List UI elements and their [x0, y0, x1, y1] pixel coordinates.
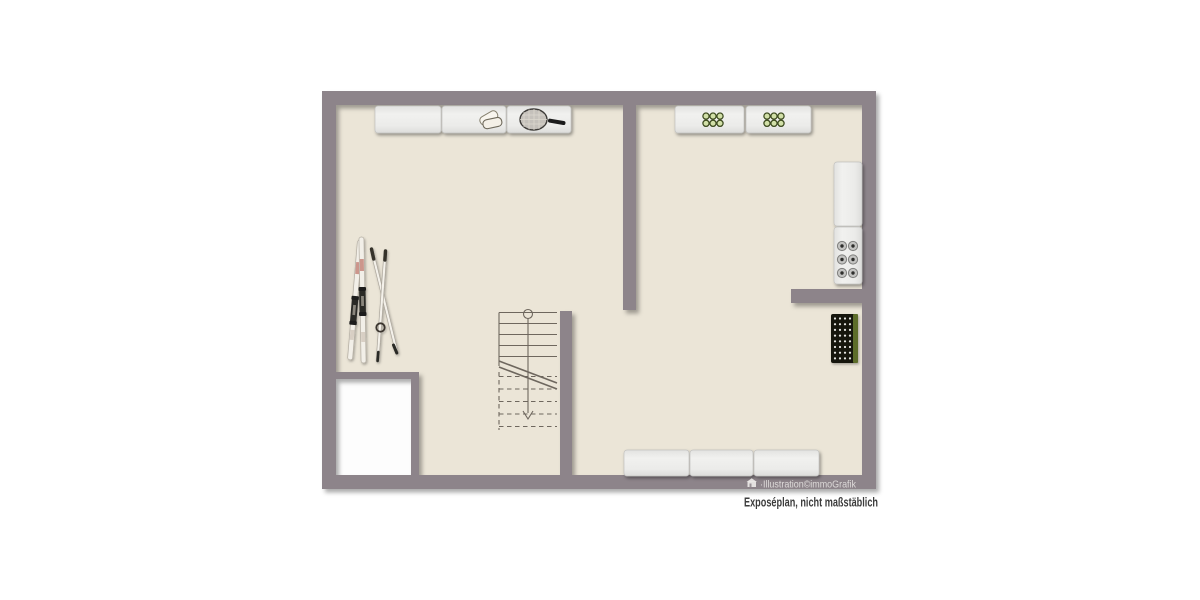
svg-text:Exposéplan, nicht maßstäblich: Exposéplan, nicht maßstäblich [744, 496, 878, 510]
svg-text:·Illustration©immoGrafik: ·Illustration©immoGrafik [760, 479, 857, 491]
